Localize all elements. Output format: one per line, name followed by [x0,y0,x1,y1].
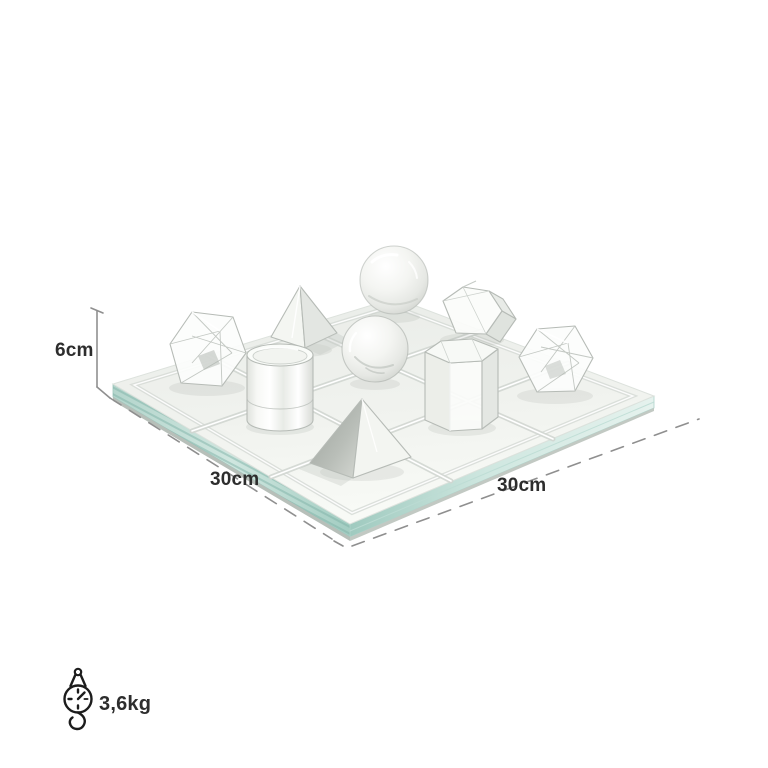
width-label: 30cm [210,469,259,491]
piece-cylinder [247,344,313,431]
product-dimension-figure: 6cm 30cm 30cm 3,6kg [0,0,768,768]
height-dimension-line [91,308,110,398]
piece-sphere-middle [342,316,408,382]
hanging-scale-icon [57,664,101,740]
depth-label: 30cm [497,475,546,497]
product-illustration [0,0,768,768]
weight-label: 3,6kg [99,693,151,716]
height-label: 6cm [55,340,93,362]
piece-sphere-top [360,246,428,314]
piece-hexagonal-prism-middle-right [425,339,498,431]
